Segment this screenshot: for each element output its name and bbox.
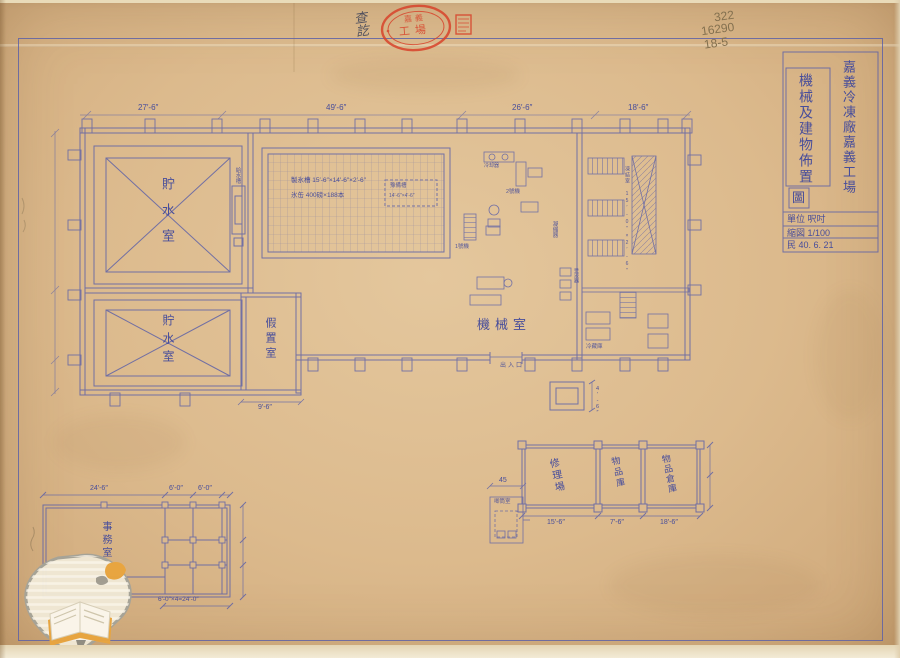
ice-tank-note-1: 製氷槽 15′-6″×14′-6″×2′-6″ — [291, 178, 366, 185]
annex-building — [487, 483, 530, 543]
label-receiver: 受液器 — [573, 268, 578, 283]
drawing-title: 機械及建物佈置 — [799, 73, 813, 185]
label-freezer-rack: 凍結室 15′-0″×2′-6″ — [624, 166, 629, 275]
dim-annex: 45 — [499, 477, 507, 484]
ice-tank-spare-2: 14′-6″×4′-6″ — [389, 194, 415, 199]
feed-tank — [232, 186, 245, 246]
room-label-temp: 假置室 — [264, 317, 275, 362]
room-label-machine: 機械室 — [477, 318, 531, 331]
sheet-border — [19, 39, 883, 641]
label-unit-1: 1號機 — [455, 245, 469, 251]
dim-office-bottom: 6′-0″×4=24′-0″ — [158, 597, 199, 604]
ice-tank-note-2: 氷缶 400磅×188本 — [291, 193, 344, 200]
dim-temp-room: 9′-6″ — [258, 404, 272, 411]
title-block-unit-row: 單位 呎吋 — [787, 215, 826, 224]
freezer-room-fittings — [582, 156, 689, 348]
label-condenser: 凝縮器 — [551, 221, 557, 238]
ice-tank-area — [262, 148, 450, 258]
room-label-water-bottom: 貯水室 — [162, 314, 174, 368]
label-cold-store: 冷藏庫 — [586, 345, 603, 351]
ice-tank-spare-1: 豫備槽 — [390, 184, 407, 190]
dim-pad: 4′-6″ — [594, 386, 600, 416]
label-entrance: 出入口 — [500, 363, 524, 369]
left-dimension-line — [51, 129, 59, 396]
equipment-pad — [550, 380, 595, 412]
dim-storage-2: 7′-6″ — [610, 519, 624, 526]
room-label-office: 事務室 — [100, 521, 110, 560]
dim-top-4: 18′-6″ — [628, 104, 648, 112]
label-unit-2: 2號機 — [506, 190, 520, 196]
dim-office-top-3: 6′-0″ — [198, 485, 212, 492]
dim-top-1: 27′-6″ — [138, 104, 158, 112]
pencil-scribbles — [22, 198, 34, 551]
room-label-annex: 唧筒室 — [494, 500, 511, 506]
dim-storage-3: 18′-6″ — [660, 519, 678, 526]
dim-top-2: 49′-6″ — [326, 104, 346, 112]
label-cooler: 冷却器 — [484, 164, 499, 169]
ink-check-note: 查訖 — [352, 10, 368, 38]
drawing-linework — [0, 0, 900, 658]
title-block-date-row: 民 40. 6. 21 — [787, 241, 834, 250]
room-label-water-top: 貯水室 — [161, 177, 174, 255]
drawing-title-boxed-char: 圖 — [792, 191, 805, 204]
title-block-scale-row: 縮図 1/100 — [787, 229, 830, 238]
title-block-company: 嘉義冷凍廠嘉義工場 — [842, 60, 855, 195]
pencil-note-3: 18-5 — [703, 35, 728, 50]
dim-storage-1: 15′-6″ — [547, 519, 565, 526]
dim-office-top-1: 24′-6″ — [90, 485, 108, 492]
label-feed-tank: 給水槽 — [234, 167, 240, 184]
library-watermark-logo — [26, 555, 130, 654]
scanned-blueprint-sheet: 322 16290 18-5 查訖 嘉義 工場 嘉義冷凍廠嘉義工場 機械及建物佈… — [0, 0, 900, 658]
dim-office-top-2: 6′-0″ — [169, 485, 183, 492]
top-dimension-line — [80, 111, 691, 119]
dim-top-3: 26′-6″ — [512, 104, 532, 112]
